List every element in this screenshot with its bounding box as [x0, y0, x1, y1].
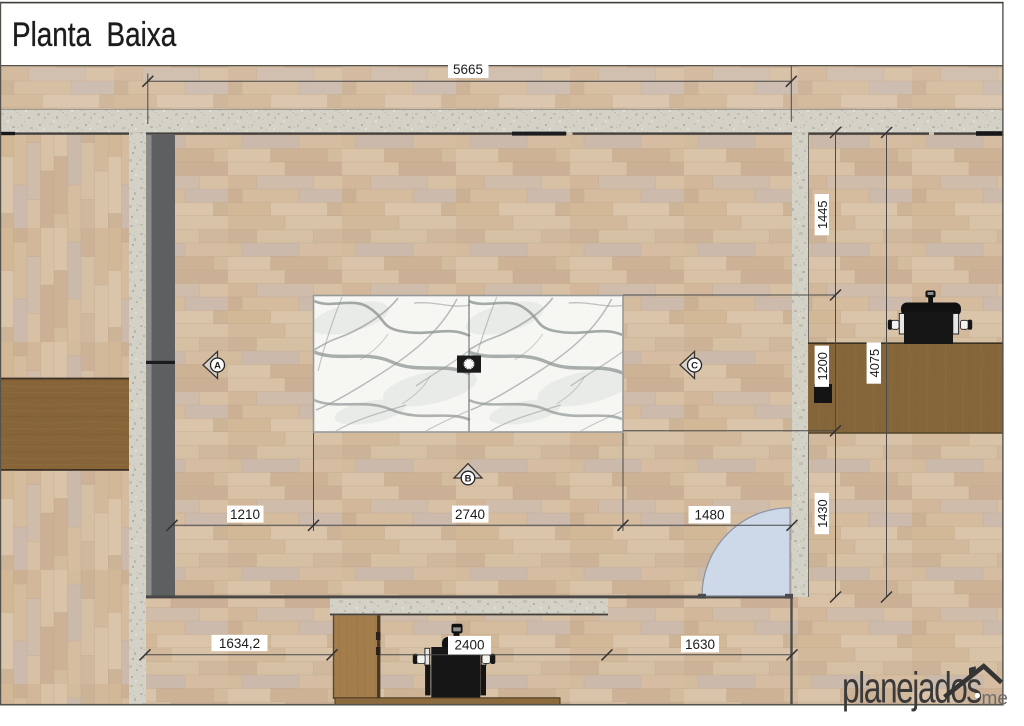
- svg-text:5665: 5665: [453, 62, 483, 77]
- svg-text:1445: 1445: [815, 200, 830, 228]
- svg-text:C: C: [691, 361, 698, 372]
- svg-text:1634,2: 1634,2: [219, 636, 260, 651]
- svg-text:4075: 4075: [867, 349, 882, 377]
- svg-text:A: A: [214, 361, 221, 372]
- svg-text:planejados: planejados: [842, 663, 981, 712]
- svg-text:1630: 1630: [685, 637, 715, 652]
- svg-text:1200: 1200: [815, 352, 830, 380]
- svg-text:Planta Baixa: Planta Baixa: [12, 15, 177, 53]
- svg-text:2740: 2740: [455, 507, 485, 522]
- svg-text:B: B: [465, 474, 472, 485]
- svg-text:2400: 2400: [454, 638, 484, 653]
- svg-text:1480: 1480: [694, 508, 724, 523]
- svg-text:me: me: [982, 689, 1008, 710]
- svg-text:1210: 1210: [230, 507, 260, 522]
- svg-text:1430: 1430: [815, 499, 830, 527]
